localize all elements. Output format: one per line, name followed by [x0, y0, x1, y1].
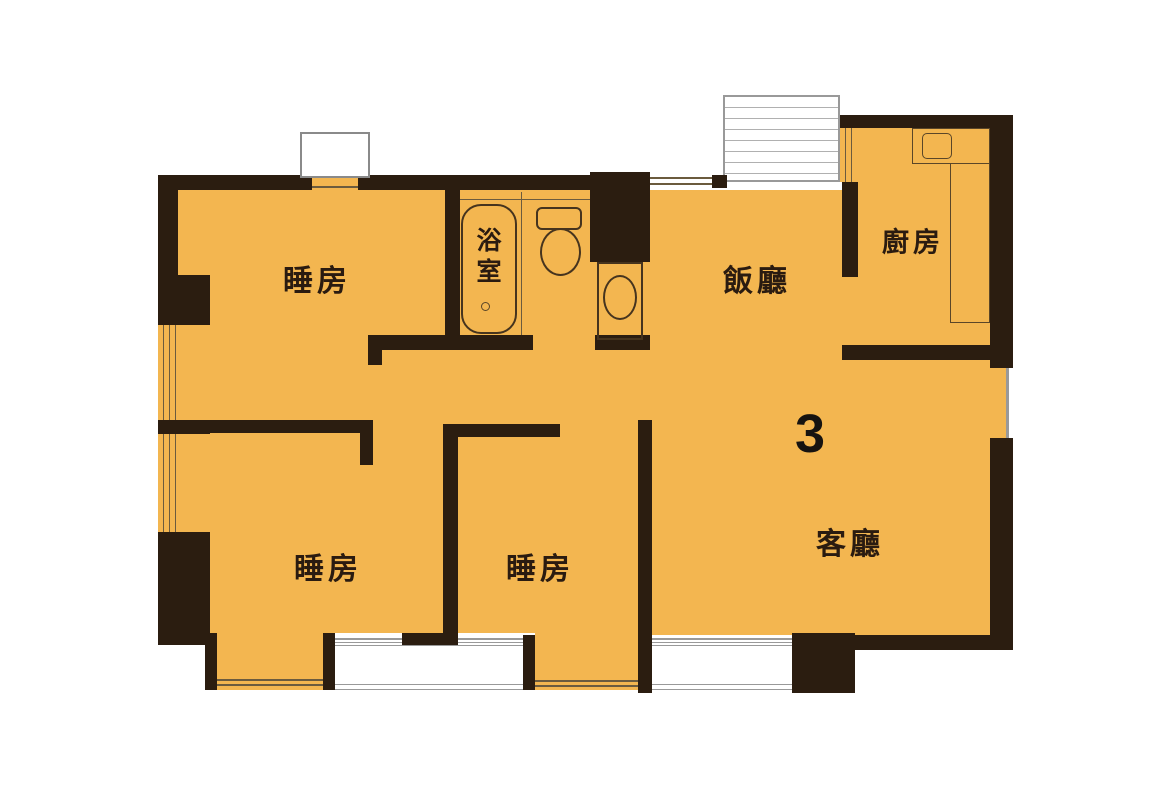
wall-window-jamb-left: [300, 178, 312, 190]
louver-platform: [723, 95, 840, 182]
dining-room-label: 飯廳: [723, 256, 791, 300]
wall-window-jamb-right: [358, 178, 370, 190]
wall-kitchen-bottom: [842, 345, 1013, 360]
bedroom-left-label: 睡房: [294, 544, 362, 588]
wall-left-pier-1: [158, 275, 210, 325]
dining-window-line-1: [650, 177, 712, 179]
bottom-window-band-left-inner-line: [335, 684, 523, 685]
unit-number: 3: [795, 403, 825, 465]
wall-bedroom-middle-top: [443, 424, 560, 437]
bottom-bay-middle-glass-line-2: [535, 685, 638, 687]
left-bay-window-upper-glass-lines: [158, 325, 176, 422]
dining-window-line-2: [650, 183, 712, 185]
wall-top-left: [158, 175, 300, 190]
bottom-window-band-right-line-1: [650, 638, 792, 640]
wall-bay-left-sliver-2: [323, 633, 335, 690]
bottom-bay-left-glass-line-1: [217, 679, 323, 681]
floor-plan: 睡房 睡房 睡房 浴室 飯廳 廚房 客廳 3 RC 利嘉閣 RICACORP P…: [0, 0, 1170, 785]
bottom-bay-middle-glass-line-1: [535, 680, 638, 682]
wall-kitchen-right: [990, 115, 1013, 368]
washbasin-bowl: [603, 275, 637, 320]
wall-corridor-top-jamb: [368, 335, 382, 365]
wall-kitchen-top: [840, 115, 1013, 128]
wall-bedroom-middle-left: [443, 424, 458, 637]
bedroom-top-window-box: [300, 132, 370, 178]
wall-bedroom-middle-right: [638, 420, 652, 693]
wall-utility-shaft: [590, 172, 650, 262]
toilet-bowl: [540, 228, 581, 276]
kitchen-sink: [922, 133, 952, 159]
bathtub-drain: [481, 302, 490, 311]
bottom-bay-left-glass-line-2: [217, 684, 323, 686]
left-bay-window-lower-glass-lines: [158, 434, 176, 532]
wall-bottom-lintel: [402, 633, 458, 645]
wall-left-upper: [158, 175, 178, 275]
kitchen-label: 廚房: [882, 221, 944, 260]
wall-left-pier-3: [158, 532, 210, 645]
wall-dining-top-chunk: [712, 175, 727, 188]
bottom-window-band-right-inner-line: [650, 684, 792, 685]
wall-corridor-bottom: [158, 420, 373, 433]
wall-bay-middle-sliver: [523, 635, 535, 690]
bedroom-top-label: 睡房: [283, 256, 351, 300]
wall-bedroom-bathroom-divider: [445, 185, 460, 350]
wall-living-right: [990, 438, 1013, 650]
bedroom-top-window-line: [312, 186, 358, 188]
bathroom-threshold-line: [460, 199, 590, 200]
bathroom-divider-line: [521, 192, 522, 335]
kitchen-counter-side: [950, 163, 990, 323]
living-room-label: 客廳: [816, 519, 884, 563]
bathroom-label: 浴室: [475, 226, 503, 289]
kitchen-window-glass-lines: [840, 128, 853, 182]
toilet-tank: [536, 207, 582, 230]
wall-bay-left-sliver-1: [205, 633, 217, 690]
bottom-window-band-right-line-2: [650, 642, 792, 643]
living-right-window-line: [1006, 368, 1009, 438]
bottom-bay-window-left: [217, 633, 323, 690]
wall-corridor-bottom-jamb: [360, 433, 373, 465]
wall-bottom-block: [792, 633, 855, 693]
wall-kitchen-dining-divider: [842, 182, 858, 277]
bedroom-middle-label: 睡房: [506, 544, 574, 588]
